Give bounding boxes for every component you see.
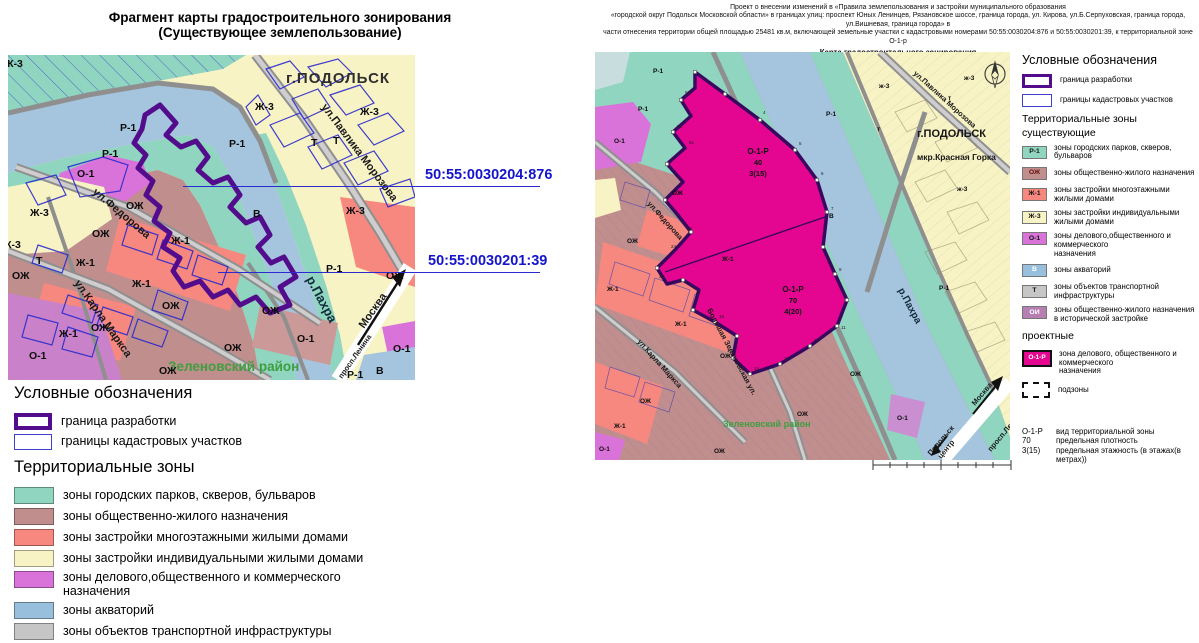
header-line3: части отнесения территории общей площадь… (600, 29, 1196, 46)
key-code: 70 (1022, 437, 1056, 446)
zone-code-label: О-1 (897, 415, 908, 422)
legend-label: подзоны (1058, 386, 1089, 395)
page: Фрагмент карты градостроительного зониро… (0, 0, 1199, 643)
key-code: 3(15) (1022, 447, 1056, 464)
zone-code-label: ОЖ (159, 365, 177, 377)
legend-title: Условные обозначения (1022, 56, 1198, 65)
zone-code: О-1-Р (747, 147, 769, 156)
zone-code-label: ОЖ (850, 371, 861, 378)
district-label: Зеленовский район (723, 419, 811, 429)
zone-swatch (14, 602, 54, 619)
zone-code-chip: В (1022, 264, 1047, 277)
zone-code-label: О-1 (297, 333, 315, 345)
zone-code-label: Ж-3 (359, 106, 379, 118)
zone-code-label: Ж-1 (606, 286, 619, 293)
vertex-number: 14 (754, 366, 760, 371)
zone-code-label: ОЖ (640, 398, 651, 405)
zone-code-label: Т (311, 137, 318, 149)
zone-code-label: ОЖ (224, 342, 242, 354)
zone-code-label: т (948, 95, 951, 102)
legend-label: зоны застройки многоэтажными жилыми дома… (1054, 186, 1198, 203)
zone-code-chip: Ж-3 (1022, 211, 1047, 224)
legend-label: зоны общественно-жилого назначения (63, 510, 288, 524)
zone-code-label: Р-1 (102, 148, 119, 160)
right-legend: Условные обозначения граница разработки … (1022, 56, 1198, 465)
legend-label: границы кадастровых участков (61, 435, 242, 449)
boundary-swatch (1022, 74, 1052, 88)
vertex-number: 53 (685, 90, 691, 95)
zone-code-label: ОЖ (92, 228, 110, 240)
zone-density: 40 (754, 158, 762, 167)
city-label: г.ПОДОЛЬСК (917, 128, 986, 140)
zoning-map: 53 54 61 4 5 6 7 9 11 12 13 14 15 16 23 … (595, 52, 1010, 460)
zone-code-label: ОЖ (262, 305, 280, 317)
legend-row: Ж-1 зоны застройки многоэтажными жилыми … (1022, 186, 1198, 203)
legend-title: Условные обозначения (14, 384, 444, 403)
zone-code-chip: Р-1 (1022, 146, 1047, 159)
legend-row: О-1 зоны делового,общественного и коммер… (1022, 232, 1198, 258)
zones-title: Территориальные зоны (14, 458, 444, 477)
legend-row-subzones: подзоны (1022, 382, 1198, 398)
boundary-swatch (14, 413, 52, 430)
legend-row: зоны акваторий (14, 602, 444, 619)
legend-row: ОЖ зоны общественно-жилого назначения (1022, 167, 1198, 180)
zone-code-label: ОЖ (162, 300, 180, 312)
zone-code-chip: ОИ (1022, 306, 1047, 319)
vertex-number: 11 (841, 325, 846, 330)
zone-code-label: ОЖ (627, 238, 638, 245)
zone-code-label: Р-1 (939, 285, 950, 292)
header-line2: «городской округ Подольск Московской обл… (600, 12, 1196, 29)
legend-row: ОИ зоны общественно-жилого назначения в … (1022, 306, 1198, 323)
legend-row: зоны объектов транспортной инфраструктур… (14, 623, 444, 640)
zone-code-chip: Т (1022, 285, 1047, 298)
zone-code-label: О-1 (599, 446, 610, 453)
legend-label: зоны общественно-жилого назначения в ист… (1054, 306, 1194, 323)
existing-subtitle: существующие (1022, 129, 1198, 138)
legend-label: зоны городских парков, скверов, бульваро… (1054, 144, 1198, 161)
zone-code-label: Т (333, 135, 340, 147)
vertex-number: 61 (689, 140, 695, 145)
zone-code-label: В (253, 208, 261, 220)
legend-label: зоны объектов транспортной инфраструктур… (1054, 283, 1198, 300)
legend-label-line2: назначения (63, 585, 341, 599)
zone-code-label: О-1 (393, 343, 411, 355)
zone-code-label: В (829, 213, 834, 220)
zone-code-label: ж-3 (878, 83, 890, 90)
zone-code-label: Ж-1 (674, 321, 687, 328)
legend-row: Ж-3 зоны застройки индивидуальными жилым… (1022, 209, 1198, 226)
legend-label-line2: назначения (1054, 250, 1198, 259)
zone-code-label: Ж-1 (75, 257, 95, 269)
legend-label-line1: зоны делового,общественного и коммерческ… (1054, 232, 1198, 249)
legend-label: зоны застройки многоэтажными жилыми дома… (63, 531, 348, 545)
right-map-header: Проект о внесении изменений в «Правила з… (600, 4, 1196, 57)
legend-row: В зоны акваторий (1022, 264, 1198, 277)
zone-code-label: ОЖ (91, 322, 109, 334)
zone-code-chip: Ж-1 (1022, 188, 1047, 201)
zone-swatch (14, 623, 54, 640)
key-row: 70 предельная плотность (1022, 437, 1198, 446)
legend-label-line2: в исторической застройке (1054, 315, 1194, 324)
zone-swatch (14, 571, 54, 588)
legend-row-boundary: граница разработки (14, 413, 444, 430)
legend-row-project: О-1-Р зона делового, общественного и ком… (1022, 350, 1198, 376)
legend-row-boundary: граница разработки (1022, 74, 1198, 88)
zone-floors: 4(20) (784, 307, 802, 316)
project-zone-chip: О-1-Р (1022, 350, 1052, 367)
vertex-number: 23 (659, 274, 665, 279)
city-label: г.ПОДОЛЬСК (286, 70, 390, 87)
left-map-title-line2: (Существующее землепользование) (30, 25, 530, 40)
scale-bar (872, 459, 1012, 471)
zone-code-label: ОЖ (720, 353, 731, 360)
vertex-number: 24 (671, 244, 677, 249)
legend-row: зоны делового,общественного и коммерческ… (14, 571, 444, 598)
zone-code-chip: ОЖ (1022, 167, 1047, 180)
legend-row: зоны застройки многоэтажными жилыми дома… (14, 529, 444, 546)
legend-label: зоны общественно-жилого назначения (1054, 169, 1194, 178)
legend-label: зоны объектов транспортной инфраструктур… (63, 625, 331, 639)
zone-code-label: Ж-3 (345, 205, 365, 217)
legend-row: Р-1 зоны городских парков, скверов, буль… (1022, 144, 1198, 161)
zone-code-label: Ж-1 (58, 328, 78, 340)
leader-line-1 (183, 186, 540, 187)
cadastral-swatch (14, 434, 52, 450)
legend-label-line1: зона делового, общественного и коммерчес… (1059, 350, 1198, 367)
zone-code-label: Ж-3 (8, 58, 23, 70)
zone-code-label: Р-1 (347, 369, 364, 380)
zone-code-label: Т (36, 255, 43, 267)
key-desc: предельная плотность (1056, 437, 1138, 446)
zone-code-label: Р-1 (120, 122, 137, 134)
zone-code-chip: О-1 (1022, 232, 1047, 245)
zone-code-label: ж-3 (956, 186, 968, 193)
key-desc: вид территориальной зоны (1056, 428, 1154, 437)
key-row: 3(15) предельная этажность (в этажах(в м… (1022, 447, 1198, 464)
legend-label: зоны делового,общественного и коммерческ… (63, 571, 341, 598)
legend-label: зоны городских парков, скверов, бульваро… (63, 489, 316, 503)
projected-subtitle: проектные (1022, 332, 1198, 341)
legend-label: зона делового, общественного и коммерчес… (1059, 350, 1198, 376)
vertex-number: 25 (687, 226, 693, 231)
vertex-number: 12 (814, 338, 820, 343)
zone-code-label: В (376, 365, 384, 377)
left-map-title-line1: Фрагмент карты градостроительного зониро… (30, 10, 530, 25)
legend-label: границы кадастровых участков (1060, 96, 1173, 105)
zone-code-label: О-1 (614, 138, 625, 145)
cadastral-number-1: 50:55:0030204:876 (425, 167, 540, 183)
key-desc: предельная этажность (в этажах(в метрах)… (1056, 447, 1198, 464)
zone-density: 70 (789, 296, 797, 305)
legend-row: зоны общественно-жилого назначения (14, 508, 444, 525)
zone-code-label: Ж-3 (254, 101, 274, 113)
left-map-title: Фрагмент карты градостроительного зониро… (30, 10, 530, 40)
key-row: О-1-Р вид территориальной зоны (1022, 428, 1198, 437)
zone-code-label: ОЖ (12, 270, 30, 282)
zone-floors: 3(15) (749, 169, 767, 178)
vertex-number: 13 (784, 356, 790, 361)
zone-code-label: Р-1 (638, 106, 649, 113)
zone-swatch (14, 550, 54, 567)
zone-code-label: О-1 (29, 350, 47, 362)
zone-code-label: ж-3 (963, 75, 975, 82)
zone-code-label: Ж-1 (721, 256, 734, 263)
zone-code-label: т (877, 126, 880, 133)
zone-code-label: О-1 (77, 168, 95, 180)
legend-label-line1: зоны делового,общественного и коммерческ… (63, 571, 341, 585)
vertex-number: 54 (677, 124, 683, 129)
legend-label: зоны акваторий (63, 604, 154, 618)
existing-landuse-map: г.ПОДОЛЬСК Зеленовский район ул.Павлика … (8, 55, 415, 380)
legend-label: зоны делового,общественного и коммерческ… (1054, 232, 1198, 258)
zone-swatch (14, 508, 54, 525)
zone-key: О-1-Р вид территориальной зоны 70 предел… (1022, 428, 1198, 464)
legend-row: зоны городских парков, скверов, бульваро… (14, 487, 444, 504)
left-legend: Условные обозначения граница разработки … (14, 384, 444, 643)
zones-title: Территориальные зоны (1022, 115, 1198, 124)
legend-row-cadastral: границы кадастровых участков (14, 434, 444, 450)
zone-code-label: Ж-1 (170, 235, 190, 247)
subzone-swatch (1022, 382, 1050, 398)
legend-label-line2: назначения (1059, 367, 1198, 376)
legend-row: зоны застройки индивидуальными жилыми до… (14, 550, 444, 567)
zone-swatch (14, 487, 54, 504)
zone-code-label: ОЖ (797, 411, 808, 418)
zone-code-label: Р-1 (653, 68, 664, 75)
zone-code-label: Р-1 (326, 263, 343, 275)
cadastral-swatch (1022, 94, 1052, 107)
zone-code-label: Ж-3 (8, 239, 21, 251)
zone-code-label: ОЖ (672, 190, 683, 197)
legend-row-cadastral: границы кадастровых участков (1022, 94, 1198, 107)
zone-code-label: Ж-1 (131, 278, 151, 290)
legend-label: зоны застройки индивидуальными жилыми до… (1054, 209, 1198, 226)
legend-row: Т зоны объектов транспортной инфраструкт… (1022, 283, 1198, 300)
legend-label: граница разработки (1060, 76, 1132, 85)
cadastral-number-2: 50:55:0030201:39 (428, 253, 540, 269)
district-label: Зеленовский район (168, 359, 299, 374)
zone-code-label: Ж-3 (29, 207, 49, 219)
zone-code-label: ОЖ (126, 200, 144, 212)
zone-code-label: Р-1 (229, 138, 246, 150)
legend-label: зоны застройки индивидуальными жилыми до… (63, 552, 363, 566)
zone-code-label: ОЖ (714, 448, 725, 455)
leader-line-2 (218, 272, 540, 273)
zone-swatch (14, 529, 54, 546)
zone-code: О-1-Р (782, 285, 804, 294)
key-code: О-1-Р (1022, 428, 1056, 437)
legend-label: граница разработки (61, 415, 176, 429)
zone-code-label: Р-1 (826, 111, 837, 118)
legend-label: зоны акваторий (1054, 266, 1111, 275)
district-mkr-label: мкр.Красная Горка (917, 152, 996, 162)
zone-code-label: Ж-1 (613, 423, 626, 430)
